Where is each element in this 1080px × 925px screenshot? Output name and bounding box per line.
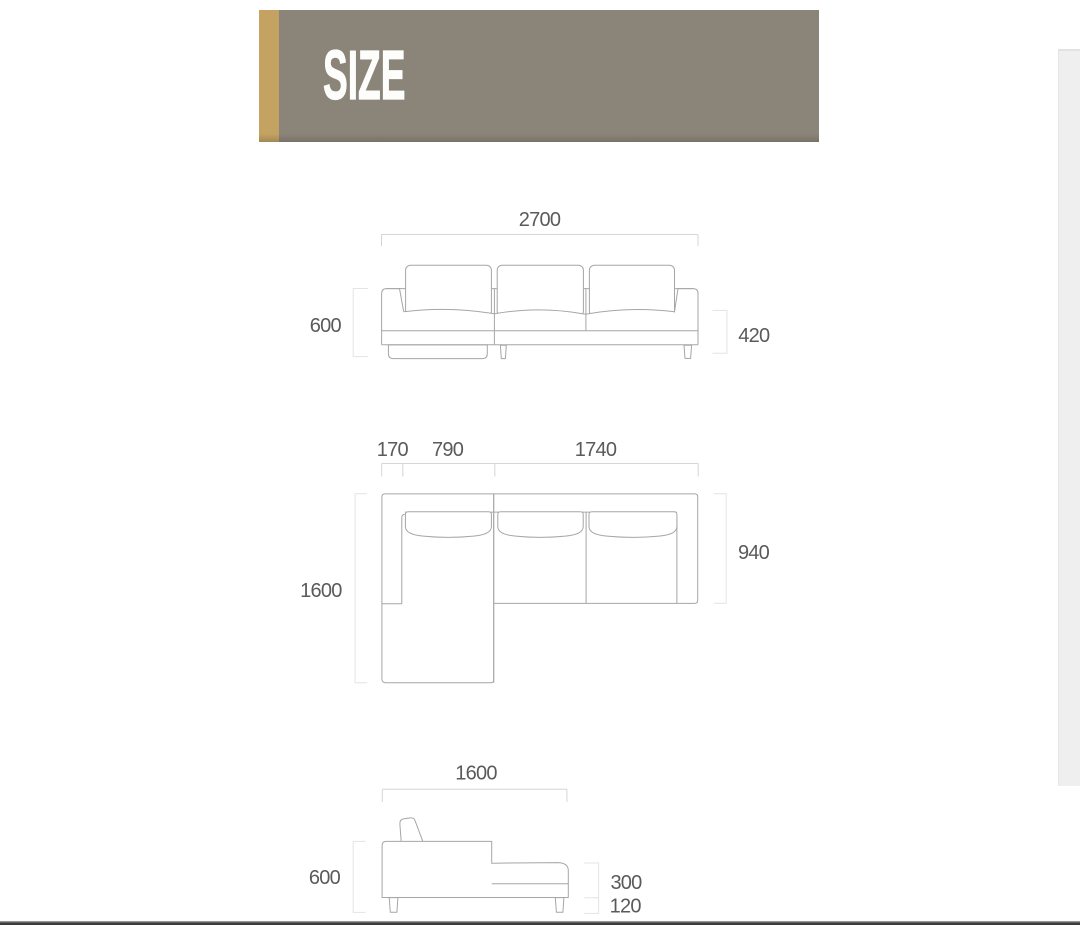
svg-text:1740: 1740: [575, 439, 617, 461]
svg-text:2700: 2700: [519, 209, 561, 231]
svg-text:940: 940: [738, 542, 770, 564]
svg-text:1600: 1600: [455, 762, 497, 784]
svg-text:600: 600: [309, 867, 341, 889]
svg-text:300: 300: [610, 872, 642, 894]
svg-text:600: 600: [310, 315, 342, 337]
svg-text:420: 420: [738, 325, 770, 347]
svg-text:170: 170: [377, 439, 409, 461]
svg-text:1600: 1600: [300, 580, 342, 602]
svg-text:790: 790: [432, 439, 464, 461]
svg-text:120: 120: [610, 896, 642, 918]
